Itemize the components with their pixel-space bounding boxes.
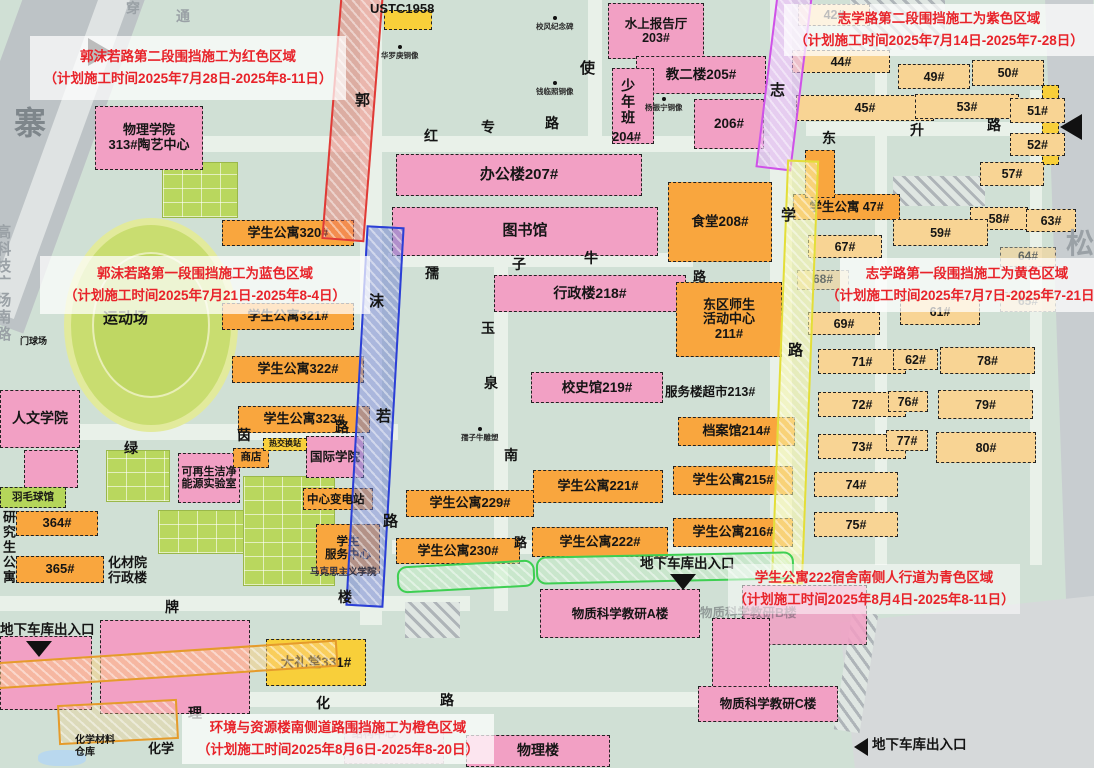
statue-dot-icon [553,16,557,20]
statue-label: 杨振宁铜像 [645,102,683,113]
bldg-74: 74# [814,472,898,497]
road-char: 路 [788,342,803,359]
statue-marker: 华罗庚铜像 [381,45,419,61]
note-line1: 郭沫若路第一段围挡施工为蓝色区域 [97,263,313,285]
note-purple-zone: 志学路第二段围挡施工为紫色区域 （计划施工时间2025年7月14日-2025年7… [784,4,1094,56]
construction-zone-green-west [396,559,535,593]
ustc1958-label: USTC1958 [370,2,434,17]
road-char: 路 [383,513,398,530]
dorm-322: 学生公寓322# [232,356,364,383]
parking-hatch [893,176,985,206]
street [0,596,470,611]
note-line1: 志学路第一段围挡施工为黄色区域 [866,263,1069,285]
gray-char-top2: 通 [176,8,190,24]
bldg-76: 76# [888,391,928,412]
road-char: 牌 [165,599,179,615]
statue-dot-icon [478,427,482,431]
bldg-59: 59# [893,219,988,246]
road-char: 化 [316,695,330,711]
bldg-62: 62# [893,349,938,370]
statue-marker: 校风纪念碑 [536,16,574,32]
gray-char-top1: 穿 [126,0,140,16]
garage-arrow-icon [26,641,52,657]
label-service-market-213: 服务楼超市213# [665,385,755,399]
building-matsci-c: 物质科学教研C楼 [698,686,838,722]
building-badminton: 羽毛球馆 [0,487,66,508]
note-line2: （计划施工时间2025年7月7日-2025年7-21日） [826,285,1094,307]
note-line2: （计划施工时间2025年8月6日-2025年8-20日） [197,739,479,761]
statue-dot-icon [398,45,402,49]
parking-hatch [405,602,460,638]
road-char: 路 [693,270,706,285]
note-cyan-zone: 学生公寓222宿舍南侧人行道为青色区域 （计划施工时间2025年8月4日-202… [728,564,1020,614]
statue-dot-icon [662,97,666,101]
statue-label: 华罗庚铜像 [381,50,419,61]
label-marxism: 马克思主义学院 [310,568,377,579]
entrance-arrow-icon [1060,114,1082,140]
building-matsci-a: 物质科学教研A楼 [540,589,700,638]
building-canteen-208: 食堂208# [668,182,772,262]
road-char: 志 [770,82,785,99]
bldg-52: 52# [1010,133,1065,156]
building-activity-center-211: 东区师生 活动中心 211# [676,282,782,357]
road-char: 沫 [369,293,384,310]
building-library: 图书馆 [392,207,658,256]
label-chem-admin: 化材院 行政楼 [108,556,147,586]
label-garage-east: 地下车库出入口 [872,737,967,753]
building-office-207: 办公楼207# [396,154,642,196]
note-line1: 志学路第二段围挡施工为紫色区域 [838,8,1041,30]
label-substation: 中心变电站 [307,494,365,507]
building-admin-218: 行政楼218# [494,275,686,312]
road-char: 若 [376,408,391,425]
bldg-50: 50# [972,60,1044,86]
bldg-49: 49# [898,64,970,89]
note-blue-zone: 郭沫若路第一段围挡施工为蓝色区域 （计划施工时间2025年7月21日-2025年… [40,256,370,314]
sports-courts [158,510,244,554]
gray-char-song: 松 [1066,228,1094,260]
dorm-229: 学生公寓229# [406,490,534,517]
road-char: 专 [481,119,495,135]
building-water-hall-203: 水上报告厅 203# [608,3,704,59]
gray-road-name-left: 高科技广场南路 [0,224,11,343]
bldg-69: 69# [808,312,880,335]
note-orange-zone: 环境与资源楼南侧道路围挡施工为橙色区域 （计划施工时间2025年8月6日-202… [182,714,494,764]
road-char: 绿 [124,440,138,456]
road-char: 学 [781,207,796,224]
road-char: 路 [514,536,527,551]
statue-label: 孺子牛雕塑 [461,432,499,443]
label-garage-west: 地下车库出入口 [0,622,95,638]
building-206: 206# [694,99,764,149]
road-char: 牛 [584,250,598,266]
building-history-museum-219: 校史馆219# [531,372,663,403]
note-line2: （计划施工时间2025年8月4日-2025年8-11日） [733,589,1014,611]
road-char: 玉 [481,320,495,336]
road-char: 路 [545,115,559,131]
building-heat-exchange: 热交换站 [263,438,307,451]
bldg-45: 45# [796,95,934,121]
note-yellow-zone: 志学路第一段围挡施工为黄色区域 （计划施工时间2025年7月7日-2025年7-… [840,258,1094,312]
building-humanities-annex [24,450,78,488]
dorm-364: 364# [16,511,98,536]
sports-courts [106,450,170,502]
building-humanities: 人文学院 [0,390,80,448]
dorm-323: 学生公寓323# [238,406,370,433]
road-char: 泉 [484,375,498,391]
note-line2: （计划施工时间2025年7月28日-2025年8-11日） [44,68,333,90]
road-char: 路 [987,117,1001,133]
note-line1: 学生公寓222宿舍南侧人行道为青色区域 [755,567,994,589]
note-line1: 环境与资源楼南侧道路围挡施工为橙色区域 [210,717,467,739]
label-garage-center: 地下车库出入口 [640,556,735,572]
road-char: 使 [580,60,595,77]
building-matsci-c-tower [712,618,770,692]
campus-map: 物理学院 313#陶艺中心水上报告厅 203#教二楼205#206#办公楼207… [0,0,1094,768]
road-char: 路 [440,692,454,708]
statue-marker: 杨振宁铜像 [645,97,683,113]
bldg-75: 75# [814,512,898,537]
bldg-57: 57# [980,162,1044,186]
road-char: 子 [512,256,526,272]
statue-label: 钱临照铜像 [536,86,574,97]
road-char: 路 [335,419,349,435]
bldg-79: 79# [938,390,1033,419]
statue-dot-icon [553,81,557,85]
statue-label: 校风纪念碑 [536,21,574,32]
label-gateball: 门球场 [20,336,47,346]
road-char: 红 [424,128,438,144]
road-char: 升 [910,122,924,138]
bldg-53: 53# [915,94,1019,119]
bldg-80: 80# [936,432,1036,463]
label-grad-dorm: 研究生公寓 [0,510,15,585]
road-char: 南 [504,447,518,463]
road-char: 楼 [338,589,352,605]
bldg-78: 78# [940,347,1035,374]
building-shop: 商店 [233,448,269,468]
note-red-zone: 郭沫若路第二段围挡施工为红色区域 （计划施工时间2025年7月28日-2025年… [30,36,346,100]
dorm-222: 学生公寓222# [532,527,668,557]
bldg-51: 51# [1010,98,1065,123]
garage-arrow-icon [670,574,696,590]
road-char: 东 [822,130,836,146]
building-clean-energy-lab: 可再生洁净 能源实验室 [178,453,240,503]
label-chem: 化学 [148,742,174,757]
statue-marker: 钱临照铜像 [536,81,574,97]
sports-courts [162,162,238,218]
label-chem-warehouse: 化学材料 仓库 [75,735,115,758]
garage-arrow-icon [854,738,868,756]
road-char: 郭 [355,92,370,109]
dorm-365: 365# [16,556,104,583]
bldg-67: 67# [808,235,882,258]
building-physics-college: 物理学院 313#陶艺中心 [95,106,203,170]
road-char: 茵 [237,427,251,443]
label-204: 204# [612,130,641,145]
building-teaching2-205: 教二楼205# [636,56,766,94]
dorm-221: 学生公寓221# [533,470,663,503]
note-line2: （计划施工时间2025年7月14日-2025年7-28日） [794,30,1084,52]
road-char: 孺 [425,265,439,281]
gray-char-zhai: 寨 [14,105,46,142]
bldg-77: 77# [886,430,928,451]
note-line1: 郭沫若路第二段围挡施工为红色区域 [80,46,296,68]
statue-marker: 孺子牛雕塑 [461,427,499,443]
label-gifted-class: 少年班 [620,78,636,126]
note-line2: （计划施工时间2025年7月21日-2025年8-4日） [64,285,346,307]
